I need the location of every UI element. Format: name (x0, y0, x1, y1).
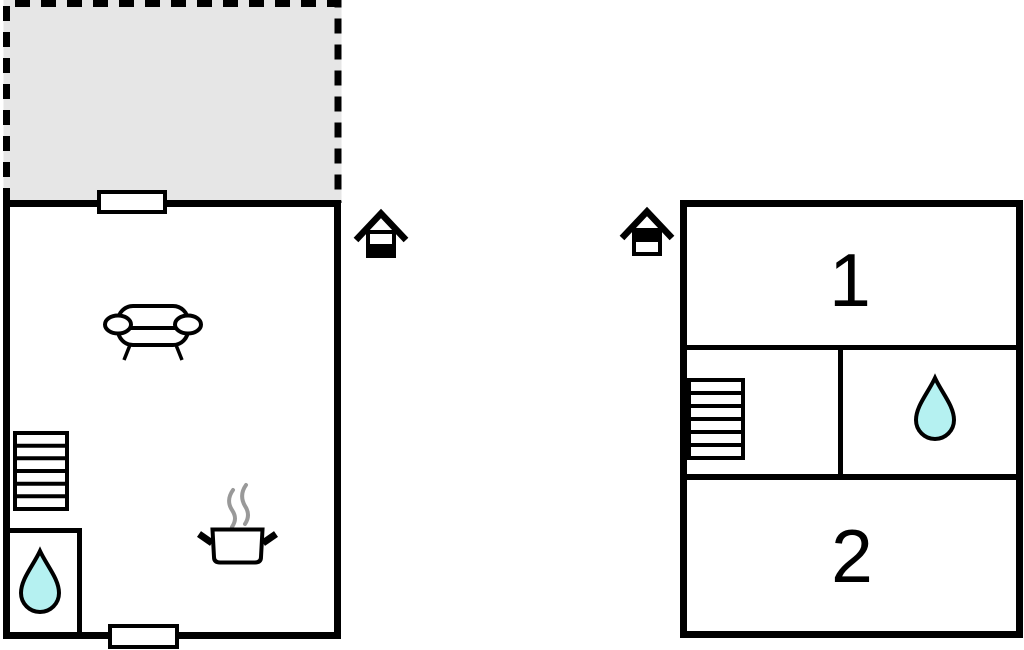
doorway-bottom (110, 626, 177, 647)
ground-floor-indicator (356, 214, 406, 259)
floorplan-canvas: 1 2 (0, 0, 1024, 650)
terrace-area (4, 0, 342, 203)
upper-floor-plan: 1 2 (682, 204, 1021, 635)
room-1-label: 1 (829, 238, 871, 322)
stairs-icon (688, 380, 744, 458)
house-ground-floor-icon (356, 214, 406, 259)
ground-floor-walls (7, 204, 338, 636)
floorplan-page: 1 2 (0, 0, 1024, 650)
ground-floor-plan (3, 0, 342, 647)
stairs-icon (14, 433, 68, 509)
doorway-top (99, 192, 165, 212)
upper-floor-indicator (622, 212, 672, 255)
house-upper-floor-icon (622, 212, 672, 255)
room-2-label: 2 (831, 514, 873, 598)
